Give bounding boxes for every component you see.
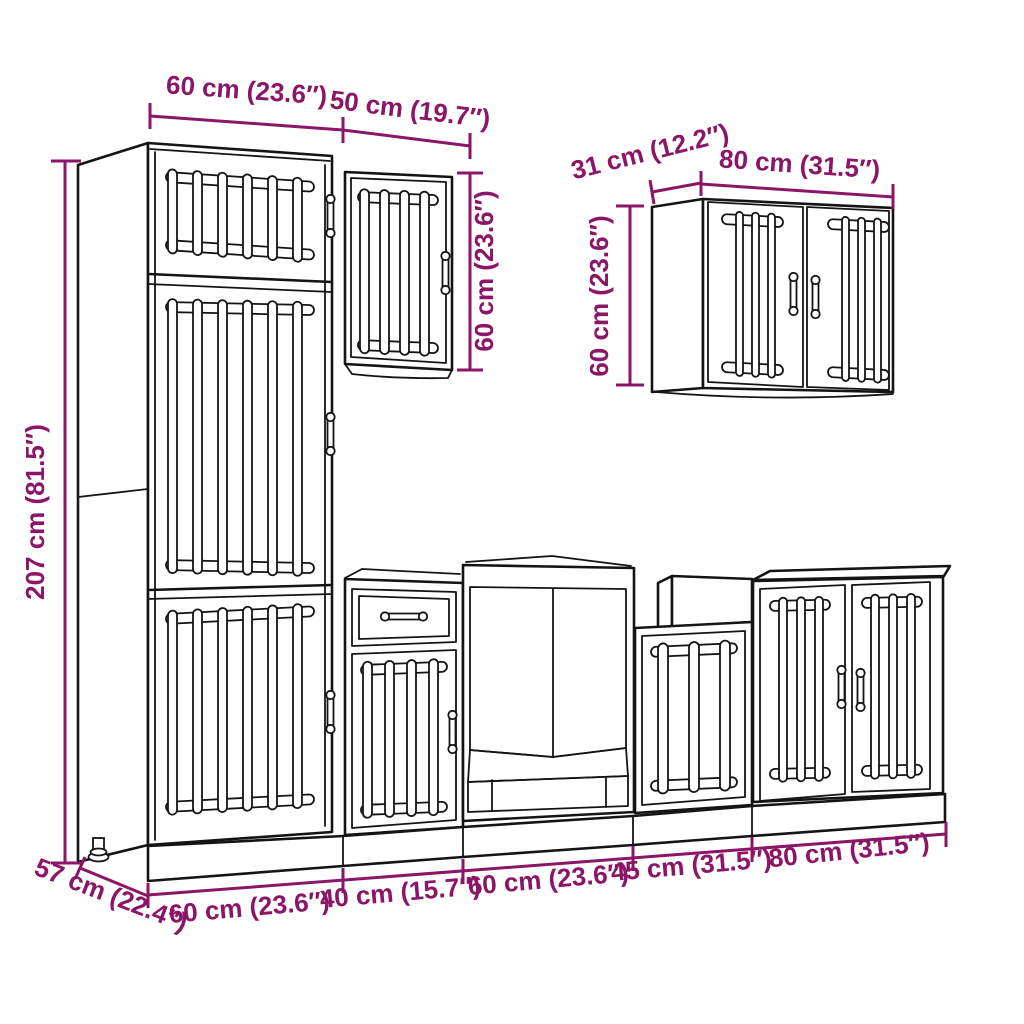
base-cabinet-40-drawer [345,569,463,835]
dim-tall-height: 207 cm (81.5″) [20,161,81,863]
wall-cabinet-50 [345,172,452,378]
door-handle-icon [326,195,334,237]
door-handle-icon [789,273,797,315]
door-handle-icon [856,669,864,711]
base-cabinet-80 [753,566,950,802]
door-handle-icon [326,691,334,733]
dim-wall50-width: 50 cm (19.7″) [328,84,492,159]
dim-label: 60 cm (23.6″) [584,215,614,376]
diagram-canvas: 60 cm (23.6″) 50 cm (19.7″) 60 cm (23.6″… [0,0,1024,1024]
dim-wall80-depth: 31 cm (12.2″) [568,117,732,204]
door-handle-icon [441,252,449,294]
base80-left-door-panel [770,597,830,782]
dim-label: 50 cm (19.7″) [328,84,492,133]
door-handle-icon [326,413,334,455]
dim-label: 80 cm (31.5″) [718,143,881,184]
door-handle-icon [811,276,819,318]
door-handle-icon [837,666,845,708]
tall-cabinet [78,143,335,862]
dim-label: 60 cm (23.6″) [165,69,328,110]
dim-label: 207 cm (81.5″) [20,424,50,600]
dim-tall-width: 60 cm (23.6″) [150,69,343,143]
drawer-handle-icon [381,612,427,620]
dim-label: 60 cm (23.6″) [467,857,630,901]
door-handle-icon [448,711,456,753]
base45-door-panel [651,640,737,794]
dim-label: 31 cm (12.2″) [568,117,732,185]
dim-label: 60 cm (23.6″) [469,190,499,351]
oven-cabinet-60 [463,556,634,821]
cabinet-drawing [78,143,950,881]
base80-right-door-panel [862,594,922,779]
base-cabinet-45 [635,576,752,813]
dim-wall80-height: 60 cm (23.6″) [584,206,644,385]
dim-wall50-height: 60 cm (23.6″) [457,173,499,370]
cabinet-dimension-diagram: 60 cm (23.6″) 50 cm (19.7″) 60 cm (23.6″… [0,0,1024,1024]
wall-cabinet-80 [652,199,893,398]
